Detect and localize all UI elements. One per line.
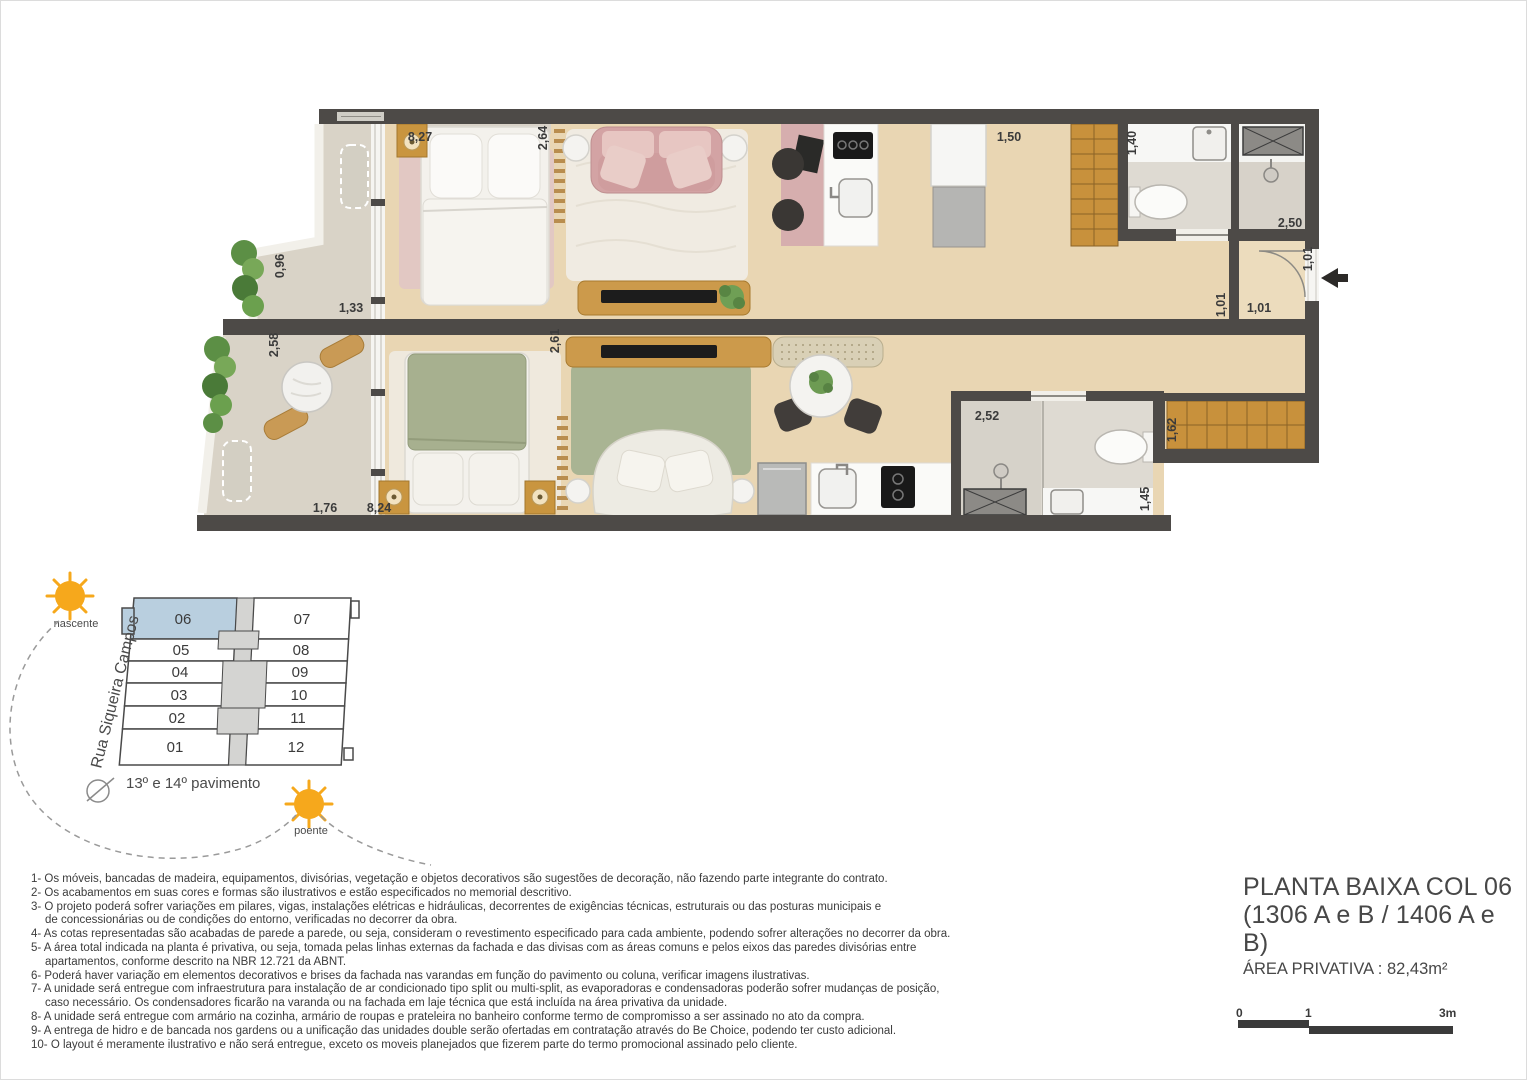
toilet-b — [1095, 430, 1154, 464]
dim-b-balcony-d: 2,58 — [267, 333, 281, 357]
wall-bottom-bath-b — [959, 515, 1171, 531]
scale-bar: 0 1 3m — [1236, 1006, 1456, 1040]
note-line: caso necessário. Os condensadores ficarã… — [31, 997, 1171, 1011]
balcony-b-table — [282, 362, 332, 412]
laundry-box-b — [964, 489, 1026, 515]
unit-label-11: 11 — [290, 710, 306, 727]
cabinet-a — [933, 187, 985, 247]
wall-right-mid — [1305, 301, 1319, 335]
bed-b — [405, 353, 529, 513]
keyplan-notch-right-bottom — [344, 748, 353, 760]
scale-bar-segment-2 — [1309, 1026, 1453, 1034]
note-line: 8- A unidade será entregue com armário n… — [31, 1011, 1171, 1025]
unit-label-09: 09 — [292, 664, 309, 681]
dim-b-wardrobe: 1,62 — [1165, 418, 1179, 442]
sun-east-icon — [47, 573, 93, 619]
note-line: 10- O layout é meramente ilustrativo e n… — [31, 1039, 1171, 1053]
note-line: 7- A unidade será entregue com infraestr… — [31, 983, 1171, 997]
note-line: 4- As cotas representadas são acabadas d… — [31, 928, 1171, 942]
unit-label-10: 10 — [291, 687, 308, 704]
plan-units: (1306 A e B / 1406 A e B) — [1243, 901, 1526, 957]
bathroom-b-sink — [1051, 490, 1083, 514]
unit-label-03: 03 — [171, 687, 188, 704]
sun-path-arc-2 — [321, 816, 431, 865]
plan-title: PLANTA BAIXA COL 06 — [1243, 873, 1526, 901]
note-line: 5- A área total indicada na planta é pri… — [31, 942, 1171, 956]
unit-label-04: 04 — [172, 664, 189, 681]
note-line: apartamentos, conforme descrito na NBR 1… — [31, 956, 1171, 970]
dim-a-bath: 1,40 — [1125, 131, 1139, 155]
dim-entry-inner: 1,01 — [1214, 293, 1228, 317]
sink-b — [819, 465, 856, 508]
wall-bath-a-divider — [1231, 124, 1239, 241]
keyplan-notch-right-top — [351, 601, 359, 618]
note-line: 6- Poderá haver variação em elementos de… — [31, 970, 1171, 984]
note-line: 3- O projeto poderá sofrer variações em … — [31, 901, 1171, 915]
note-line: 1- Os móveis, bancadas de madeira, equip… — [31, 873, 1171, 887]
tv-console-b — [566, 337, 771, 367]
dim-b-bath-w: 2,52 — [975, 409, 999, 423]
side-table-a-left — [563, 135, 589, 161]
unit-label-07: 07 — [294, 611, 311, 628]
sun-east-label: nascente — [54, 618, 99, 630]
toilet-a — [1129, 185, 1187, 219]
wall-over-wardrobe-b — [1164, 393, 1305, 401]
dim-a-hall: 1,50 — [997, 130, 1021, 144]
wall-top — [319, 109, 1319, 124]
laundry-box-a — [1243, 127, 1303, 155]
unit-label-05: 05 — [173, 642, 190, 659]
cooktop-b — [881, 466, 915, 508]
side-table-a-right — [721, 135, 747, 161]
compass-icon — [87, 778, 114, 802]
note-line: 9- A entrega de hidro e de bancada nos g… — [31, 1025, 1171, 1039]
dim-a-shower: 2,50 — [1278, 216, 1302, 230]
floor-plan: 8,27 2,64 1,50 1,40 2,50 1,01 1,01 1,01 … — [197, 109, 1348, 531]
title-block: PLANTA BAIXA COL 06 (1306 A e B / 1406 A… — [1243, 873, 1526, 979]
scale-bar-segment-1 — [1238, 1020, 1309, 1028]
nightstand-b-right — [525, 481, 555, 514]
wall-central — [223, 319, 1305, 335]
unit-label-06: 06 — [175, 611, 192, 628]
key-plan: nascente poente — [10, 573, 431, 865]
entry-arrow-icon — [1321, 268, 1348, 288]
keyplan-building — [119, 598, 359, 765]
wall-right-lower — [1305, 335, 1319, 463]
notes-list: 1- Os móveis, bancadas de madeira, equip… — [31, 873, 1171, 1052]
fridge-b — [758, 463, 806, 515]
dim-a-bedroom-depth: 2,64 — [536, 126, 550, 150]
keyplan-floor-label: 13º e 14º pavimento — [126, 775, 260, 792]
dim-a-balcony-w: 0,96 — [273, 254, 287, 278]
wall-bottom — [197, 515, 959, 531]
balcony-a-slider — [371, 124, 385, 319]
tv-console-a — [578, 281, 750, 315]
note-line: de concessionárias ou de condições do en… — [31, 914, 1171, 928]
dim-b-width: 8,24 — [367, 501, 391, 515]
sun-west-label: poente — [294, 825, 328, 837]
wall-hall-left — [1229, 241, 1239, 319]
keyplan-core-tab-lower — [217, 708, 259, 734]
dim-a-balcony-l: 1,33 — [339, 301, 363, 315]
side-table-b-left — [566, 479, 590, 503]
scale-label-0: 0 — [1236, 1006, 1243, 1020]
wardrobe-a — [1071, 124, 1118, 246]
floor-plan-page: 8,27 2,64 1,50 1,40 2,50 1,01 1,01 1,01 … — [0, 0, 1527, 1080]
scale-label-1: 1 — [1305, 1006, 1312, 1020]
plan-area: ÁREA PRIVATIVA : 82,43m² — [1243, 959, 1526, 979]
kitchen-a — [772, 124, 878, 246]
sofa-a — [591, 127, 722, 193]
wall-under-wardrobe-b — [1164, 449, 1319, 463]
lounger-b — [223, 441, 251, 501]
stool-a-1 — [772, 148, 804, 180]
bed-a — [417, 124, 551, 305]
dim-entry-side: 1,01 — [1301, 247, 1315, 271]
unit-label-02: 02 — [169, 710, 186, 727]
keyplan-core-tab-upper — [218, 631, 259, 649]
note-line: 2- Os acabamentos em suas cores e formas… — [31, 887, 1171, 901]
wall-bath-b-left — [951, 391, 961, 515]
dim-b-balcony-w: 1,76 — [313, 501, 337, 515]
unit-label-08: 08 — [293, 642, 310, 659]
fridge-a — [931, 124, 986, 186]
sofa-b — [593, 430, 733, 519]
cooktop-a — [833, 132, 873, 159]
stool-a-2 — [772, 199, 804, 231]
dim-entry-width: 1,01 — [1247, 301, 1271, 315]
dim-b-bath-d: 1,45 — [1138, 487, 1152, 511]
wardrobe-b — [1167, 401, 1305, 449]
dim-b-bedroom-depth: 2,61 — [548, 329, 562, 353]
wall-right-upper — [1305, 109, 1319, 249]
kitchen-b — [758, 463, 959, 515]
scale-label-3m: 3m — [1439, 1006, 1456, 1020]
unit-label-12: 12 — [288, 739, 305, 756]
keyplan-core-mid — [221, 661, 267, 708]
wall-bath-b-right — [1153, 399, 1165, 463]
lounger-a — [341, 145, 368, 208]
dim-a-width: 8,27 — [408, 130, 432, 144]
unit-label-01: 01 — [167, 739, 184, 756]
